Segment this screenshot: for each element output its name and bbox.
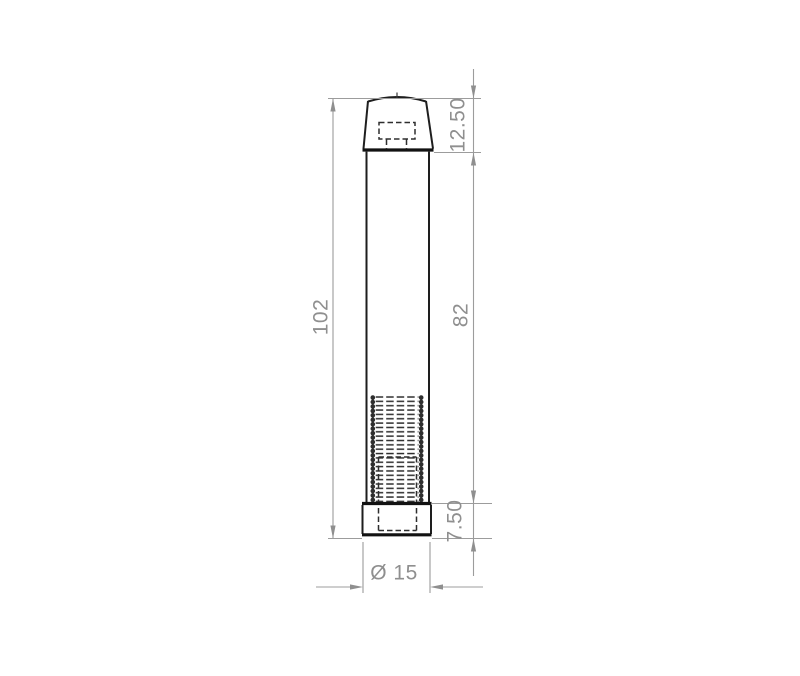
arrowhead-left: [430, 584, 443, 589]
dimension-annotations: 102 12.50 82 7.50 Ø 15: [310, 69, 492, 593]
cap-hidden-slot: [379, 123, 415, 150]
dim-diameter-label: Ø 15: [370, 562, 418, 585]
arrowhead-up: [471, 539, 476, 552]
cylindrical-part-drawing: 102 12.50 82 7.50 Ø 15: [0, 0, 800, 676]
cap-outline: [363, 93, 434, 151]
arrowhead-up: [471, 153, 476, 166]
arrowhead-down: [471, 491, 476, 504]
arrowhead-up: [330, 99, 335, 112]
dim-right-column: 12.50 82 7.50: [444, 69, 477, 576]
cap-right-side: [426, 101, 433, 149]
arrowhead-right: [350, 584, 363, 589]
technical-drawing-canvas: 102 12.50 82 7.50 Ø 15: [0, 0, 800, 676]
dim-cap-height-label: 12.50: [447, 97, 470, 152]
part-outline: [362, 93, 434, 535]
arrowhead-down: [471, 86, 476, 99]
dim-body-height-label: 82: [450, 303, 473, 327]
thread-dashed-rows: [375, 395, 419, 502]
cap-left-side: [364, 101, 369, 149]
thread-hidden-section: [373, 395, 421, 502]
dim-base-height-label: 7.50: [444, 500, 467, 543]
dim-overall-height: 102: [310, 99, 336, 539]
arrowhead-down: [330, 526, 335, 539]
extension-lines: [328, 99, 492, 594]
dim-diameter: Ø 15: [316, 562, 483, 590]
dim-overall-height-label: 102: [310, 299, 333, 336]
cap-hidden-slot-rect: [379, 123, 415, 140]
